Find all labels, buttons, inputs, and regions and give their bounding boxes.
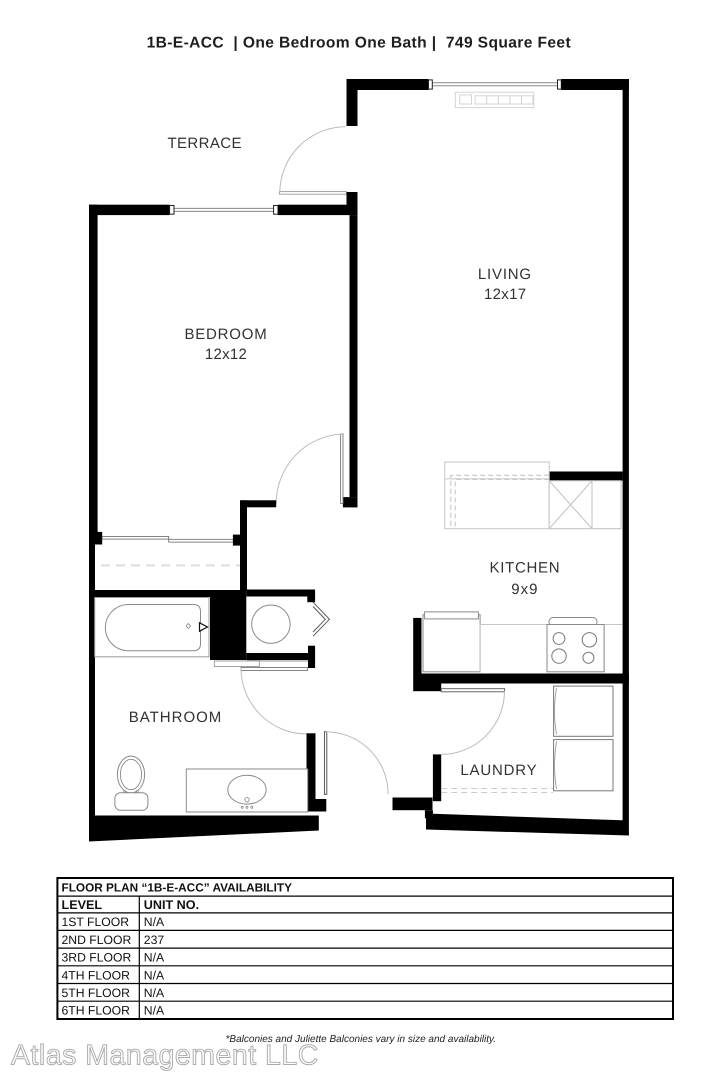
svg-text:KITCHEN: KITCHEN — [490, 559, 561, 576]
svg-text:237: 237 — [144, 933, 165, 947]
svg-text:N/A: N/A — [144, 986, 165, 1000]
svg-text:4TH FLOOR: 4TH FLOOR — [62, 968, 131, 982]
svg-text:2ND FLOOR: 2ND FLOOR — [62, 933, 132, 947]
svg-text:TERRACE: TERRACE — [167, 135, 241, 152]
svg-text:1ST FLOOR: 1ST FLOOR — [62, 915, 130, 929]
svg-text:*Balconies and Juliette Balcon: *Balconies and Juliette Balconies vary i… — [226, 1034, 497, 1045]
svg-text:N/A: N/A — [144, 968, 165, 982]
svg-text:LAUNDRY: LAUNDRY — [460, 762, 537, 779]
svg-text:BATHROOM: BATHROOM — [129, 709, 223, 726]
svg-text:N/A: N/A — [144, 1004, 165, 1018]
svg-text:BEDROOM: BEDROOM — [184, 326, 267, 343]
svg-text:6TH FLOOR: 6TH FLOOR — [62, 1004, 131, 1018]
svg-text:1B-E-ACC | One Bedroom One Ba: 1B-E-ACC | One Bedroom One Bath | 749 Sq… — [147, 35, 571, 52]
svg-text:9x9: 9x9 — [511, 581, 538, 598]
svg-text:12x17: 12x17 — [484, 286, 526, 303]
svg-text:UNIT NO.: UNIT NO. — [144, 898, 199, 912]
svg-text:FLOOR PLAN “1B-E-ACC” AVAILABI: FLOOR PLAN “1B-E-ACC” AVAILABILITY — [62, 881, 293, 895]
svg-text:N/A: N/A — [144, 915, 165, 929]
svg-text:N/A: N/A — [144, 951, 165, 965]
svg-text:LEVEL: LEVEL — [62, 898, 103, 912]
svg-text:12x12: 12x12 — [205, 346, 247, 363]
svg-text:LIVING: LIVING — [478, 266, 532, 283]
svg-text:3RD FLOOR: 3RD FLOOR — [62, 951, 132, 965]
svg-text:5TH FLOOR: 5TH FLOOR — [62, 986, 131, 1000]
